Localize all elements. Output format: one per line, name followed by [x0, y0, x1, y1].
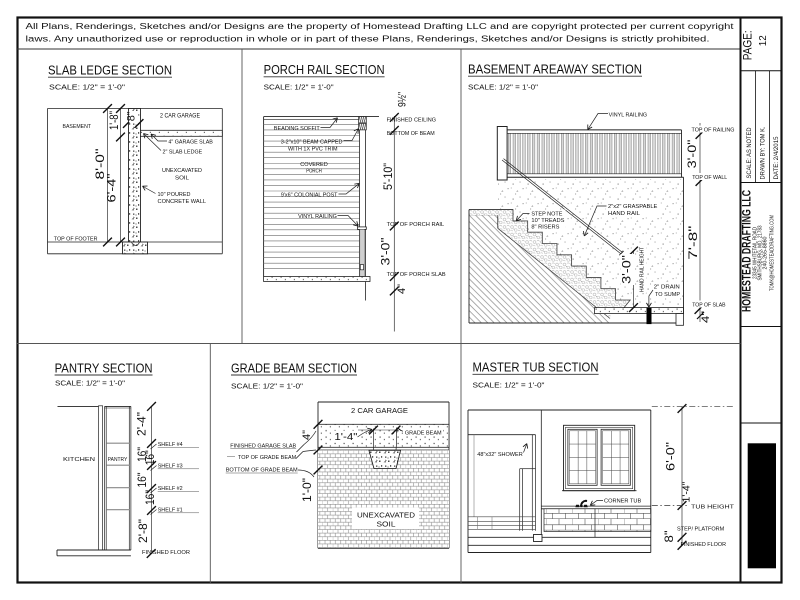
svg-text:BOTTOM OF GRADE BEAM: BOTTOM OF GRADE BEAM [226, 468, 298, 474]
svg-text:8": 8" [664, 531, 676, 543]
svg-text:TOP OF GRADE BEAM: TOP OF GRADE BEAM [238, 455, 296, 461]
svg-text:HAND RAIL: HAND RAIL [608, 211, 641, 217]
svg-text:SCALE: 1/2" = 1'-0": SCALE: 1/2" = 1'-0" [55, 381, 126, 388]
svg-text:2" DRAIN: 2" DRAIN [654, 285, 680, 291]
svg-text:TOP OF WALL: TOP OF WALL [692, 175, 727, 181]
svg-text:4": 4" [396, 284, 408, 294]
svg-text:STEP NOTE: STEP NOTE [531, 212, 562, 218]
svg-text:2'-4": 2'-4" [137, 412, 149, 436]
svg-text:PORCH: PORCH [306, 169, 322, 175]
svg-text:1'-0": 1'-0" [302, 478, 314, 502]
svg-text:PORCH RAIL SECTION: PORCH RAIL SECTION [264, 62, 385, 77]
svg-text:UNEXCAVATED: UNEXCAVATED [162, 168, 202, 174]
svg-text:STEP/ PLATFORM: STEP/ PLATFORM [677, 526, 725, 532]
svg-text:CORNER TUB: CORNER TUB [604, 499, 641, 505]
svg-text:16": 16" [145, 490, 157, 505]
svg-text:FINISHED CEILING: FINISHED CEILING [387, 117, 436, 123]
svg-text:TO SUMP: TO SUMP [655, 292, 680, 298]
svg-text:SCALE: 1/2" = 1'-0": SCALE: 1/2" = 1'-0" [468, 85, 539, 92]
svg-text:PANTRY: PANTRY [108, 457, 128, 463]
svg-text:16": 16" [145, 450, 157, 465]
svg-text:6'-0": 6'-0" [666, 442, 678, 471]
svg-text:TOP OF PORCH RAIL: TOP OF PORCH RAIL [387, 222, 445, 228]
svg-text:SCALE: AS NOTED: SCALE: AS NOTED [746, 127, 753, 178]
svg-text:4" GARAGE SLAB: 4" GARAGE SLAB [168, 139, 213, 145]
svg-text:TOP OF PORCH SLAB: TOP OF PORCH SLAB [387, 272, 446, 278]
svg-text:All Plans, Renderings, Sketche: All Plans, Renderings, Sketches and/or D… [26, 22, 735, 31]
svg-text:SOIL: SOIL [175, 176, 190, 182]
svg-text:laws. Any unauthorized use or: laws. Any unauthorized use or reproducti… [26, 35, 710, 44]
svg-text:FINISHED FLOOR: FINISHED FLOOR [681, 542, 727, 548]
svg-text:3'-0": 3'-0" [622, 255, 634, 284]
svg-text:1'-4": 1'-4" [681, 481, 693, 502]
svg-text:SCALE: 1/2" = 1'-0": SCALE: 1/2" = 1'-0" [264, 85, 335, 92]
svg-text:SCALE: 1/2" = 1'-0": SCALE: 1/2" = 1'-0" [473, 383, 546, 390]
svg-text:FINISHED FLOOR: FINISHED FLOOR [142, 550, 190, 556]
svg-text:1'-4": 1'-4" [334, 432, 358, 443]
svg-text:16": 16" [137, 473, 149, 488]
svg-text:4": 4" [700, 311, 712, 323]
svg-text:MASTER TUB SECTION: MASTER TUB SECTION [473, 360, 599, 375]
svg-text:5'-10": 5'-10" [383, 163, 395, 190]
svg-text:TOP OF RAILING: TOP OF RAILING [692, 127, 735, 133]
svg-text:8" RISERS: 8" RISERS [531, 225, 559, 231]
svg-text:BOTTOM OF BEAM: BOTTOM OF BEAM [387, 131, 435, 137]
svg-text:TUB HEIGHT: TUB HEIGHT [691, 504, 735, 510]
svg-text:TOMK@HOMESTEADDRAFTING.COM: TOMK@HOMESTEADDRAFTING.COM [770, 215, 776, 291]
svg-text:SCALE: 1/2" = 1'-0": SCALE: 1/2" = 1'-0" [231, 384, 304, 391]
svg-text:UNEXCAVATED: UNEXCAVATED [357, 511, 416, 520]
svg-text:9'x6" COLONIAL POST: 9'x6" COLONIAL POST [281, 193, 338, 199]
svg-text:DATE: 2/4/2015: DATE: 2/4/2015 [773, 136, 780, 179]
svg-text:1'-8": 1'-8" [109, 111, 121, 130]
svg-text:VINYL RAILING: VINYL RAILING [298, 214, 337, 220]
svg-text:COVERED: COVERED [300, 162, 327, 168]
svg-text:10" TREADS: 10" TREADS [531, 218, 564, 224]
svg-text:7'-8": 7'-8" [688, 226, 700, 260]
svg-text:10" POURED: 10" POURED [158, 192, 191, 198]
svg-text:TOP OF SLAB: TOP OF SLAB [692, 303, 726, 309]
svg-text:KITCHEN: KITCHEN [63, 457, 95, 463]
svg-text:SLAB LEDGE SECTION: SLAB LEDGE SECTION [48, 63, 172, 78]
svg-text:6'-4": 6'-4" [107, 174, 119, 203]
svg-text:12: 12 [758, 35, 769, 46]
svg-text:2" SLAB LEDGE: 2" SLAB LEDGE [163, 150, 203, 156]
svg-text:2"x2" GRASPABLE: 2"x2" GRASPABLE [608, 204, 658, 210]
svg-text:2'-8": 2'-8" [138, 519, 150, 543]
svg-text:48"x32" SHOWER: 48"x32" SHOWER [477, 452, 522, 458]
svg-text:BASEMENT AREAWAY SECTION: BASEMENT AREAWAY SECTION [468, 62, 642, 77]
svg-text:CONCRETE WALL: CONCRETE WALL [158, 199, 207, 205]
svg-text:BASEMENT: BASEMENT [63, 124, 92, 130]
svg-text:PANTRY SECTION: PANTRY SECTION [55, 361, 153, 376]
svg-text:BEADING SOFFIT: BEADING SOFFIT [274, 126, 320, 132]
svg-text:9½": 9½" [397, 92, 409, 107]
svg-text:2 CAR GARAGE: 2 CAR GARAGE [351, 406, 408, 415]
svg-text:DRAWN BY: TOM K.: DRAWN BY: TOM K. [760, 126, 767, 179]
svg-text:3'-0": 3'-0" [687, 140, 699, 169]
svg-text:8": 8" [126, 111, 138, 121]
svg-text:4": 4" [301, 430, 313, 440]
svg-text:GRADE BEAM: GRADE BEAM [405, 430, 442, 436]
svg-text:TOP OF FOOTER: TOP OF FOOTER [54, 236, 98, 242]
svg-text:HAND RAIL HEIGHT: HAND RAIL HEIGHT [640, 246, 646, 292]
svg-text:GRADE BEAM SECTION: GRADE BEAM SECTION [231, 361, 357, 376]
svg-text:2 CAR GARAGE: 2 CAR GARAGE [160, 114, 200, 120]
svg-text:3'-0": 3'-0" [381, 238, 393, 266]
svg-text:8'-0": 8'-0" [95, 149, 107, 180]
svg-text:SCALE: 1/2" = 1'-0": SCALE: 1/2" = 1'-0" [49, 85, 126, 92]
svg-text:SOIL: SOIL [377, 520, 396, 529]
svg-text:240-265-8860: 240-265-8860 [762, 236, 768, 269]
svg-text:3-2"x10" BEAM CAPPED: 3-2"x10" BEAM CAPPED [281, 139, 343, 145]
svg-text:PAGE:: PAGE: [743, 30, 755, 60]
svg-text:WITH 1X PVC TRIM: WITH 1X PVC TRIM [288, 146, 338, 152]
svg-text:VINYL RAILING: VINYL RAILING [609, 113, 648, 119]
